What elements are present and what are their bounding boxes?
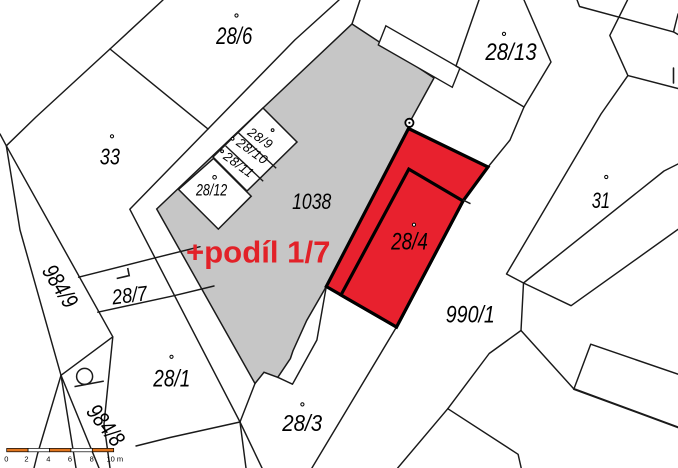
svg-text:1038: 1038 [292,189,331,214]
svg-text:28/3: 28/3 [281,410,322,436]
svg-text:8: 8 [90,454,94,463]
svg-text:990/1: 990/1 [446,302,495,329]
svg-text:4: 4 [46,454,50,463]
svg-text:28/7: 28/7 [110,282,150,309]
svg-text:2: 2 [24,454,28,463]
svg-text:28/1: 28/1 [153,366,191,393]
svg-text:33: 33 [100,144,120,170]
svg-text:6: 6 [68,454,72,463]
svg-text:31: 31 [592,188,610,213]
svg-text:28/4: 28/4 [390,229,427,256]
svg-text:28/6: 28/6 [215,23,252,50]
svg-text:10 m: 10 m [107,454,124,463]
svg-text:28/12: 28/12 [195,182,227,200]
svg-text:+podíl 1/7: +podíl 1/7 [186,236,330,270]
svg-text:0: 0 [4,454,8,463]
svg-text:28/13: 28/13 [484,39,537,66]
